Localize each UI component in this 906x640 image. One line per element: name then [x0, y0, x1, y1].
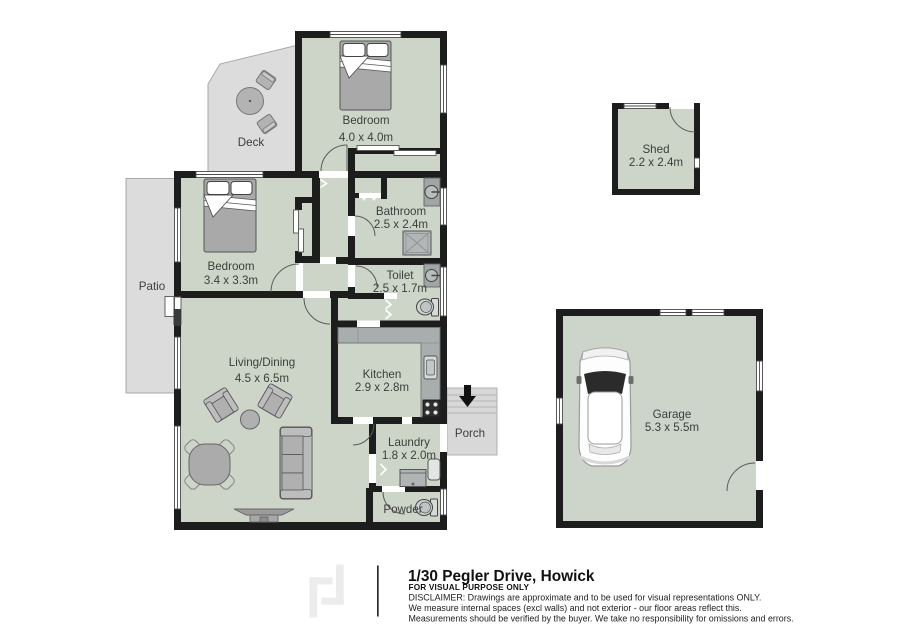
svg-text:4.5 x 6.5m: 4.5 x 6.5m — [235, 372, 289, 385]
svg-text:Toilet: Toilet — [386, 269, 414, 282]
svg-text:DISCLAIMER: Drawings are appr: DISCLAIMER: Drawings are approximate and… — [409, 593, 762, 603]
svg-text:Living/Dining: Living/Dining — [229, 356, 295, 369]
svg-text:Bedroom: Bedroom — [207, 260, 254, 273]
svg-text:Garage: Garage — [653, 408, 692, 421]
svg-text:Measurements should be verifie: Measurements should be verified by the b… — [409, 614, 794, 624]
svg-text:4.0 x 4.0m: 4.0 x 4.0m — [339, 131, 393, 144]
svg-text:Bedroom: Bedroom — [342, 114, 389, 127]
svg-text:2.5 x 1.7m: 2.5 x 1.7m — [373, 282, 427, 295]
svg-text:Laundry: Laundry — [388, 436, 430, 449]
svg-text:3.4 x 3.3m: 3.4 x 3.3m — [204, 274, 258, 287]
svg-text:2.9 x 2.8m: 2.9 x 2.8m — [355, 381, 409, 394]
svg-text:Powder: Powder — [383, 503, 422, 516]
svg-text:Bathroom: Bathroom — [376, 205, 426, 218]
svg-text:1.8 x 2.0m: 1.8 x 2.0m — [382, 449, 436, 462]
svg-text:5.3 x 5.5m: 5.3 x 5.5m — [645, 421, 699, 434]
svg-text:FOR VISUAL PURPOSE ONLY: FOR VISUAL PURPOSE ONLY — [409, 583, 530, 592]
svg-text:Deck: Deck — [238, 136, 265, 149]
svg-text:Kitchen: Kitchen — [363, 368, 402, 381]
svg-text:2.5 x 2.4m: 2.5 x 2.4m — [374, 218, 428, 231]
svg-text:2.2 x 2.4m: 2.2 x 2.4m — [629, 156, 683, 169]
svg-text:Shed: Shed — [642, 143, 669, 156]
svg-text:Patio: Patio — [139, 280, 165, 293]
svg-text:We measure internal spaces (ex: We measure internal spaces (excl walls) … — [409, 603, 742, 613]
svg-text:Porch: Porch — [455, 427, 485, 440]
